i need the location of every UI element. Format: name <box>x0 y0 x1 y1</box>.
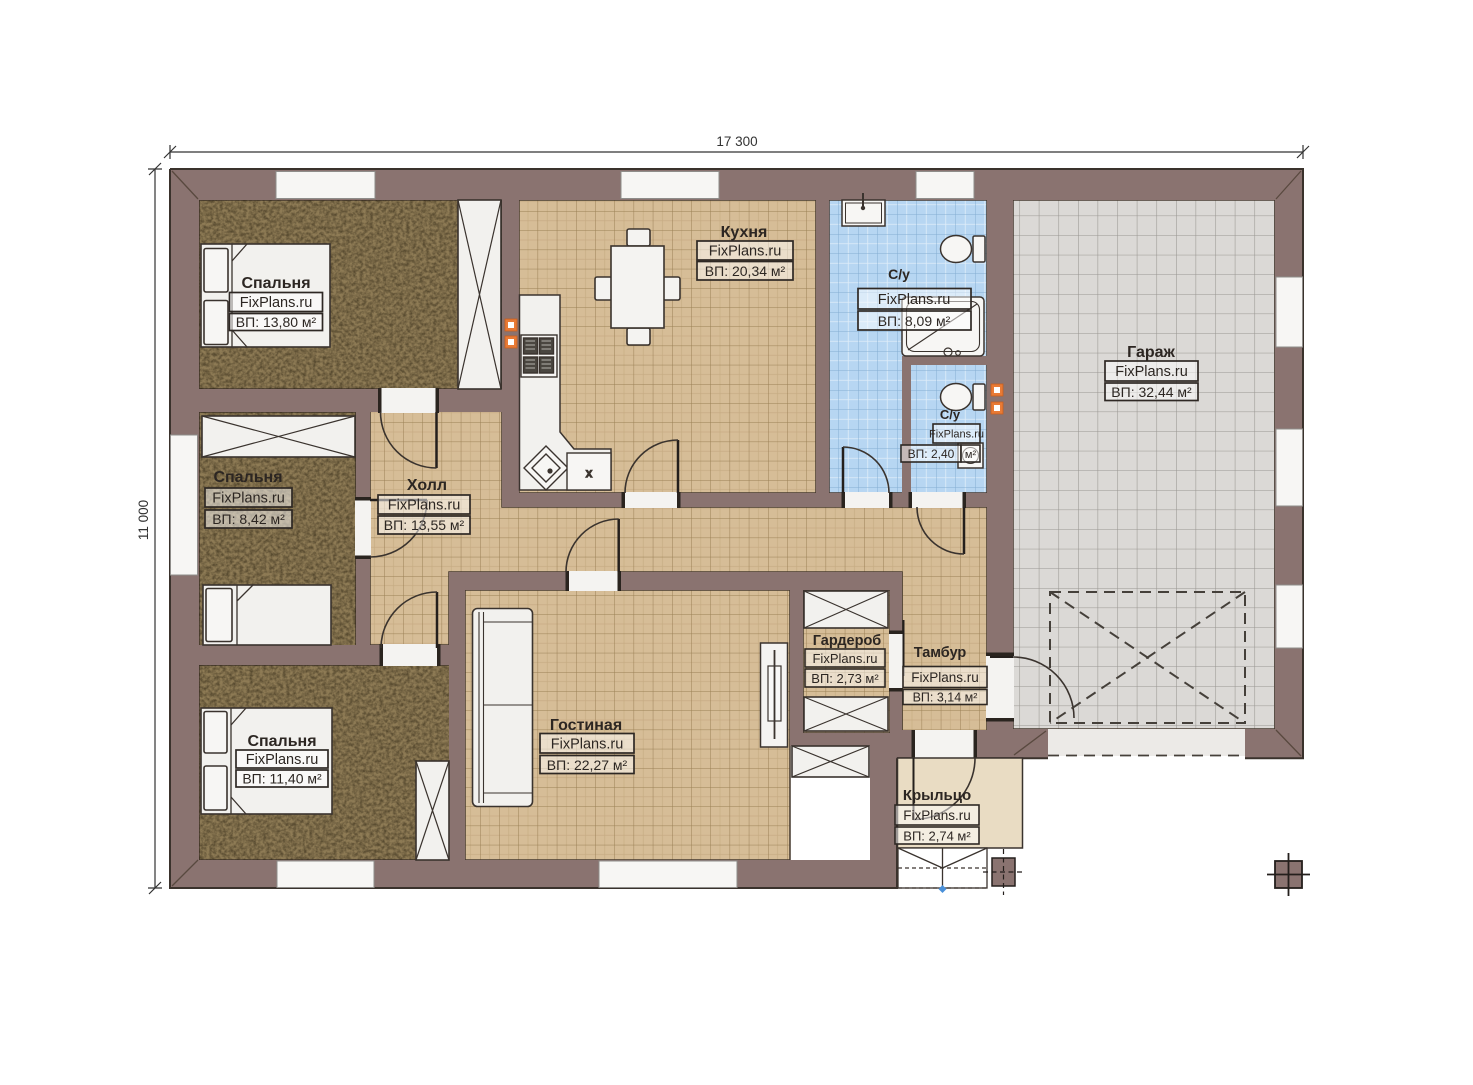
svg-text:Гараж: Гараж <box>1127 344 1175 361</box>
svg-text:ВП: 32,44 м²: ВП: 32,44 м² <box>1111 384 1192 400</box>
svg-text:Спальня: Спальня <box>213 469 282 486</box>
svg-text:FixPlans.ru: FixPlans.ru <box>929 429 984 441</box>
svg-text:ВП: 2,40: ВП: 2,40 <box>908 447 955 461</box>
svg-text:FixPlans.ru: FixPlans.ru <box>903 808 971 823</box>
svg-text:ВП: 20,34 м²: ВП: 20,34 м² <box>705 263 786 279</box>
svg-text:11 000: 11 000 <box>136 500 151 540</box>
svg-text:С/у: С/у <box>940 407 961 422</box>
svg-text:FixPlans.ru: FixPlans.ru <box>812 651 877 666</box>
svg-text:Холл: Холл <box>407 477 447 494</box>
svg-text:FixPlans.ru: FixPlans.ru <box>709 244 782 260</box>
svg-text:ВП: 11,40 м²: ВП: 11,40 м² <box>242 771 322 787</box>
svg-text:С/у: С/у <box>888 266 910 282</box>
svg-text:Гардероб: Гардероб <box>813 633 882 649</box>
svg-text:м²: м² <box>965 449 977 461</box>
svg-text:ВП: 22,27 м²: ВП: 22,27 м² <box>547 757 628 773</box>
svg-text:x: x <box>586 466 592 480</box>
svg-text:ВП: 13,55 м²: ВП: 13,55 м² <box>384 517 465 533</box>
svg-text:FixPlans.ru: FixPlans.ru <box>212 491 285 507</box>
svg-text:17 300: 17 300 <box>716 134 757 149</box>
svg-text:FixPlans.ru: FixPlans.ru <box>878 292 951 308</box>
svg-text:Спальня: Спальня <box>241 275 310 292</box>
svg-text:FixPlans.ru: FixPlans.ru <box>240 295 313 311</box>
svg-text:Кухня: Кухня <box>721 224 768 241</box>
svg-text:FixPlans.ru: FixPlans.ru <box>551 737 624 753</box>
svg-text:Крыльцо: Крыльцо <box>903 787 971 804</box>
svg-text:ВП: 8,42 м²: ВП: 8,42 м² <box>212 511 285 527</box>
svg-text:FixPlans.ru: FixPlans.ru <box>1115 364 1188 380</box>
svg-text:ВП: 2,74 м²: ВП: 2,74 м² <box>903 829 971 844</box>
svg-text:Тамбур: Тамбур <box>914 645 967 661</box>
svg-text:ВП: 8,09 м²: ВП: 8,09 м² <box>878 313 951 329</box>
svg-text:Спальня: Спальня <box>247 733 316 750</box>
svg-text:Гостиная: Гостиная <box>550 717 622 734</box>
svg-text:FixPlans.ru: FixPlans.ru <box>911 670 979 685</box>
svg-text:FixPlans.ru: FixPlans.ru <box>388 498 461 514</box>
svg-text:ВП: 3,14 м²: ВП: 3,14 м² <box>913 691 978 705</box>
svg-text:ВП: 13,80 м²: ВП: 13,80 м² <box>236 314 317 330</box>
svg-text:FixPlans.ru: FixPlans.ru <box>246 752 319 768</box>
svg-text:ВП: 2,73 м²: ВП: 2,73 м² <box>811 671 879 686</box>
